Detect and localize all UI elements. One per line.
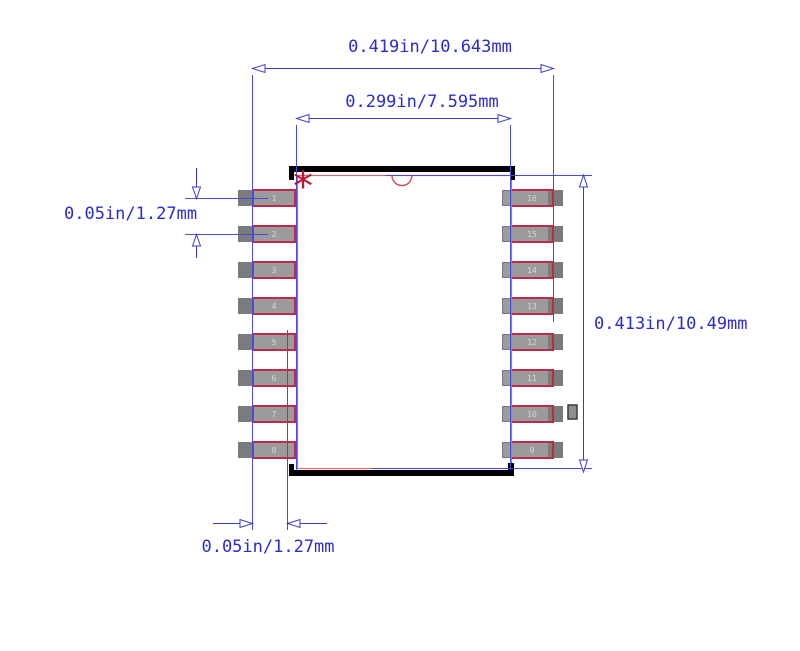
pad-number: 7	[252, 407, 296, 422]
pad-number: 4	[252, 299, 296, 314]
pin1-marker-asterisk: *	[291, 167, 315, 207]
pad-right-12: 12	[502, 334, 563, 350]
footprint-diagram: 1 2 3 4 5 6 7 8 16 15 14 13 12 11 10 9	[0, 0, 800, 651]
pad-right-10: 10	[502, 406, 563, 422]
pad-right-13: 13	[502, 298, 563, 314]
package-body-outline	[298, 176, 512, 469]
pad-uncovered-area	[239, 191, 253, 205]
pad-number: 16	[510, 191, 554, 206]
pad-number: 14	[510, 263, 554, 278]
pad-right-16: 16	[502, 190, 563, 206]
pad-number: 3	[252, 263, 296, 278]
pad-number: 2	[252, 227, 296, 242]
pad-uncovered-area	[239, 299, 253, 313]
pad-uncovered-area	[239, 371, 253, 385]
dim-label-lead-span: 0.419in/10.643mm	[280, 37, 580, 57]
assembly-bracket-bottom	[289, 463, 514, 476]
pad-right-9: 9	[502, 442, 563, 458]
pin1-notch-arc	[392, 176, 412, 186]
pad-uncovered-area	[239, 443, 253, 457]
pad-left-1: 1	[238, 190, 298, 206]
pad-uncovered-area	[239, 407, 253, 421]
pad-left-6: 6	[238, 370, 298, 386]
pad-number: 11	[510, 371, 554, 386]
pad-left-7: 7	[238, 406, 298, 422]
orientation-marker-square	[568, 405, 577, 419]
pad-number: 1	[252, 191, 296, 206]
dim-label-pin-pitch-left: 0.05in/1.27mm	[64, 204, 197, 224]
pad-number: 9	[510, 443, 554, 458]
pad-right-11: 11	[502, 370, 563, 386]
pad-number: 5	[252, 335, 296, 350]
pad-number: 10	[510, 407, 554, 422]
pad-number: 12	[510, 335, 554, 350]
dim-label-offset-bottom: 0.05in/1.27mm	[168, 537, 368, 557]
dim-label-pad-span-vertical: 0.413in/10.49mm	[594, 314, 748, 334]
pad-right-14: 14	[502, 262, 563, 278]
dim-label-body-width: 0.299in/7.595mm	[272, 92, 572, 112]
pad-uncovered-area	[239, 335, 253, 349]
pad-left-5: 5	[238, 334, 298, 350]
pad-left-8: 8	[238, 442, 298, 458]
pad-left-2: 2	[238, 226, 298, 242]
pad-number: 13	[510, 299, 554, 314]
assembly-bracket-top	[289, 166, 515, 180]
pad-number: 15	[510, 227, 554, 242]
pad-left-4: 4	[238, 298, 298, 314]
pad-right-15: 15	[502, 226, 563, 242]
pad-uncovered-area	[239, 263, 253, 277]
pad-left-3: 3	[238, 262, 298, 278]
pad-number: 6	[252, 371, 296, 386]
pad-uncovered-area	[239, 227, 253, 241]
pad-number: 8	[252, 443, 296, 458]
